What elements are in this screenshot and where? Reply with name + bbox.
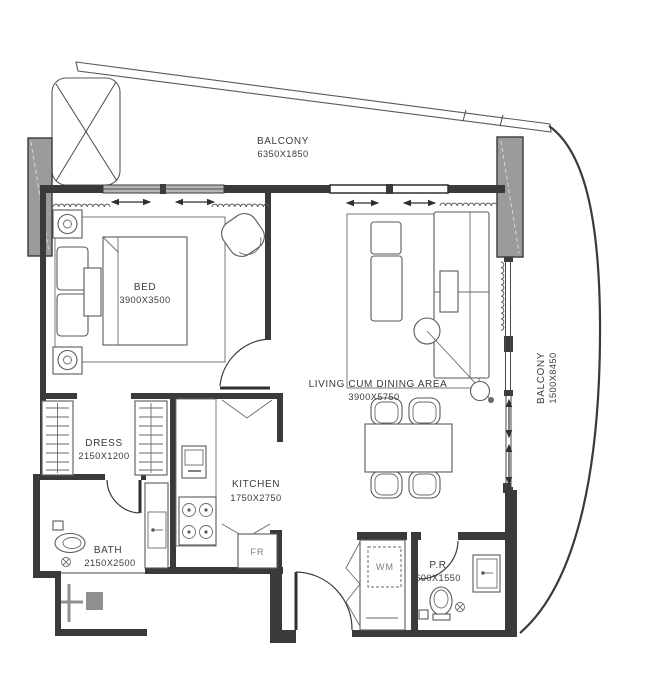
bed-label: BED <box>134 282 156 293</box>
pillow <box>57 294 88 336</box>
stove <box>179 497 216 545</box>
headboard-bench <box>84 268 101 316</box>
balcony-right-labels: BALCONY 1500X8450 <box>536 352 558 404</box>
balcony-top-dims: 6350X1850 <box>257 149 308 159</box>
sofa-side-table <box>440 271 458 312</box>
bed-dims: 3900X3500 <box>119 295 170 305</box>
wm-label: WM <box>376 562 394 572</box>
toilet-icon <box>430 587 452 615</box>
bedroom: BED 3900X3500 <box>53 209 270 374</box>
table-lamp-icon <box>58 215 77 234</box>
balcony-top-label: BALCONY <box>257 136 309 147</box>
living-label: LIVING CUM DINING AREA <box>309 379 448 390</box>
toilet-base <box>433 614 450 620</box>
cabinet-swing-mark <box>222 400 272 418</box>
bifold-door-mark <box>346 542 360 584</box>
balcony-railing <box>76 62 551 132</box>
balcony-curve-edge <box>520 126 600 633</box>
bin-icon <box>419 610 428 619</box>
laundry-closet: WM <box>346 540 405 630</box>
lounge-chair <box>371 222 401 254</box>
powder-room: P.R 600X1550 <box>415 555 500 620</box>
dress-dims: 2150X1200 <box>78 451 129 461</box>
balcony-right-label: BALCONY <box>536 352 547 404</box>
dining-chair <box>371 471 402 498</box>
floor-lamp-base-icon <box>488 397 494 403</box>
curtain-icon <box>440 203 497 206</box>
dining-table <box>365 424 452 472</box>
top-balcony: BALCONY 6350X1850 <box>52 62 551 185</box>
balcony-right-dims: 1500X8450 <box>548 352 558 403</box>
kitchen: FR KITCHEN 1750X2750 <box>176 399 282 568</box>
dining-chair <box>409 471 440 498</box>
curtain-icon <box>212 204 269 207</box>
bath-label: BATH <box>94 545 122 556</box>
kitchen-dims: 1750X2750 <box>230 493 281 503</box>
curtain-icon <box>53 204 110 207</box>
living-dining: LIVING CUM DINING AREA 3900X5750 <box>309 212 494 498</box>
pr-dims: 600X1550 <box>415 573 461 583</box>
floor-lamp-shade-icon <box>471 382 490 401</box>
bath-door-arc <box>107 480 139 513</box>
shower-head-icon <box>86 592 103 610</box>
kitchen-label: KITCHEN <box>232 479 280 490</box>
cistern <box>53 521 63 530</box>
chaise <box>371 256 402 321</box>
curtain-icon <box>501 262 504 330</box>
pillow <box>57 247 88 290</box>
bifold-door-mark <box>346 584 360 626</box>
toilet-icon <box>55 534 85 553</box>
kitchen-sink <box>182 446 206 478</box>
living-dims: 3900X5750 <box>348 392 399 402</box>
bedroom-door-arc <box>220 339 271 386</box>
table-lamp-icon <box>58 351 77 370</box>
bathroom: BATH 2150X2500 <box>53 483 168 622</box>
right-balcony: BALCONY 1500X8450 <box>520 126 600 633</box>
pr-label: P.R <box>429 560 446 571</box>
dress-label: DRESS <box>85 438 122 449</box>
dress-room: DRESS 2150X1200 <box>42 401 167 475</box>
floor-plan: BALCONY 6350X1850 BALCONY 1500X8450 <box>0 0 660 699</box>
wm-closet <box>360 540 405 630</box>
floor-plan-canvas: BALCONY 6350X1850 BALCONY 1500X8450 <box>0 0 660 699</box>
bath-dims: 2150X2500 <box>84 558 135 568</box>
fridge-label: FR <box>251 547 265 557</box>
entrance-door-arc <box>296 572 352 630</box>
